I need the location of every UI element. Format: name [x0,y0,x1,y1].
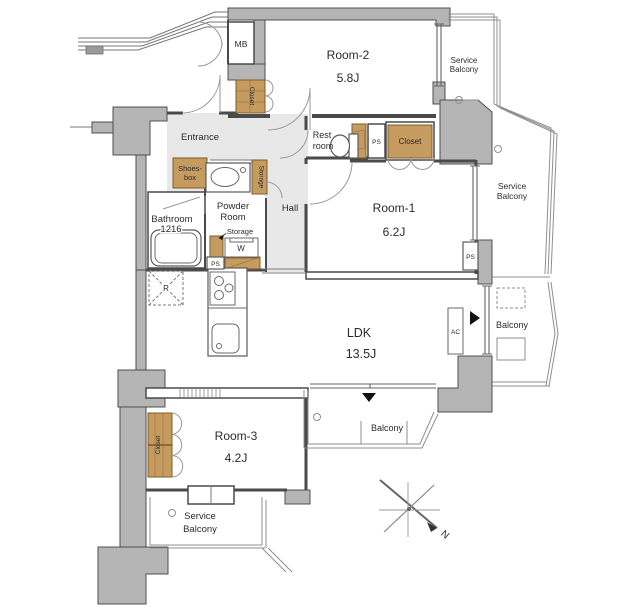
service-balcony-bottom-label-2: Balcony [183,524,217,535]
wall-entrance-stub [92,122,113,133]
canvas-background [0,0,640,608]
powder-storage-label: Storage [227,227,253,236]
wall-right-block [440,100,492,164]
balcony-right-label: Balcony [496,320,529,330]
wall-ps-block [478,240,492,284]
service-balcony-top-label-1: Service [451,56,478,65]
powder-room-label-1: Powder [217,201,249,212]
washbasin-icon [206,163,250,192]
service-balcony-top-label-2: Balcony [450,65,478,74]
room3-size: 4.2J [225,451,248,465]
wall-left-band-upper [136,155,146,270]
shoes-box-label-1: Shoes- [178,164,202,173]
wall-mb-bottom [228,64,265,80]
room2-size: 5.8J [337,71,360,85]
powder-room-label-2: Room [220,212,245,223]
wall-room1-ldk [306,272,478,279]
floor-plan: MB Room-2 5.8J Service Balcony Closet En… [0,0,640,608]
refrigerator-label: R [163,284,169,293]
ldk-label: LDK [347,326,372,340]
room1-size: 6.2J [383,225,406,239]
kitchen-icon [208,268,247,356]
hall-label: Hall [282,203,298,214]
ldk-size: 13.5J [346,347,377,361]
corridor-column [86,46,103,54]
ps-label-1: PS [372,139,381,146]
mb-label: MB [235,39,248,49]
room1-closet-label: Closet [399,137,422,146]
ac-label: AC [451,329,460,336]
bathtub-icon [151,230,201,266]
service-balcony-bottom-label-1: Service [184,511,216,522]
balcony-bottom-label: Balcony [371,423,404,433]
floor-plan-canvas: MB Room-2 5.8J Service Balcony Closet En… [0,0,640,608]
room2-label: Room-2 [327,48,370,62]
entrance-passage-floor [228,114,266,160]
wall-room3-corner [285,490,310,504]
ps-label-2: PS [211,261,220,268]
shoes-box-label-2: box [184,173,196,182]
toilet-icon [331,134,359,158]
room3-closet-label: Closet [155,436,162,455]
room2-closet-label: Closet [248,87,255,106]
toilet-tank [349,134,358,158]
service-balcony-right-label-1: Service [498,181,527,191]
toilet-bowl [331,135,350,157]
entrance-label: Entrance [181,132,219,143]
hall-floor [265,114,308,272]
entrance-storage-label: Storage [258,166,265,189]
restroom-label-2: room [313,141,334,151]
kitchen-counter [208,268,247,356]
room3-label: Room-3 [215,429,258,443]
room1-label: Room-1 [373,201,416,215]
washer-label: W [237,244,245,253]
wall-ldk-room3 [146,388,308,398]
wall-left-band-lower [120,407,146,547]
compass-center [407,507,411,511]
ps-label-3: PS [466,254,475,261]
service-balcony-right-label-2: Balcony [497,191,528,201]
bathtub-outer [151,230,201,266]
restroom-label-1: Rest [313,130,332,140]
bathroom-label-2: 1216 [160,224,181,235]
